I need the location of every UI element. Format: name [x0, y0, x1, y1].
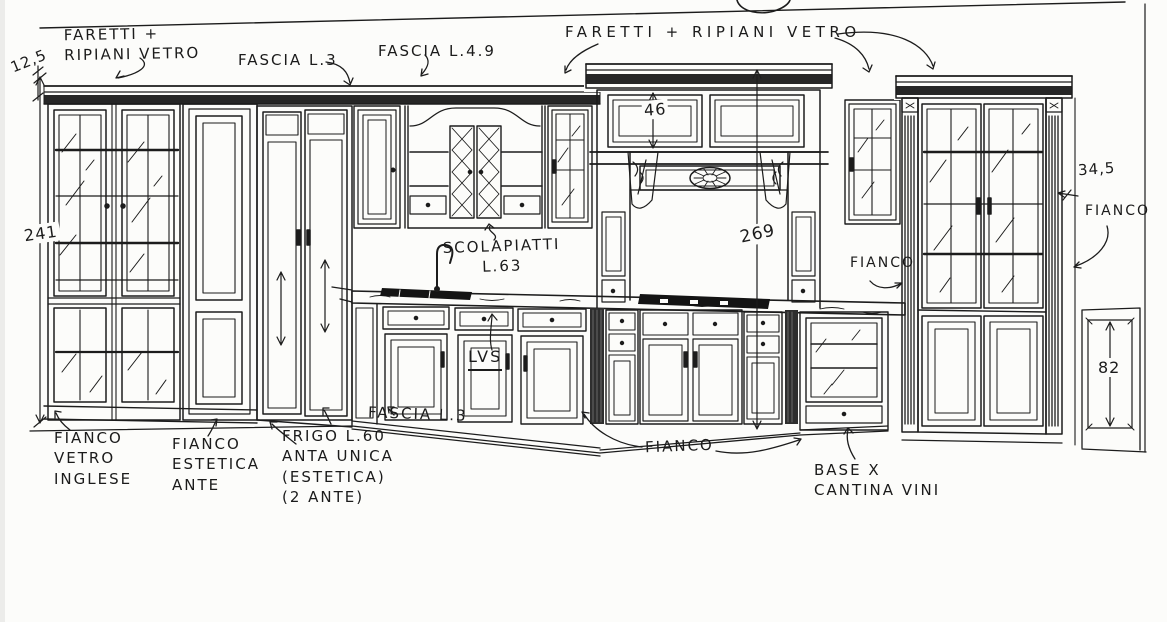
wall-cabinets-sink-run — [354, 106, 592, 228]
label-fascia-l3-bottom: FASCIA L.3 — [368, 402, 468, 426]
plain-wall-cabinet — [354, 106, 400, 228]
label-fascia-l3-top: FASCIA L.3 — [238, 50, 338, 70]
tall-door-cabinet — [183, 104, 257, 420]
right-end-panel — [1075, 98, 1140, 450]
glass-wall-cabinet — [548, 106, 592, 228]
label-lvs: LVS — [468, 346, 502, 371]
left-glass-cabinet — [44, 104, 257, 423]
scolapiatti-plate-rack — [405, 106, 545, 228]
label-fianco-vetro-inglese: FIANCO VETRO INGLESE — [54, 428, 132, 489]
dimension-lines — [33, 66, 1114, 429]
label-fianco-right-top: FIANCO — [1085, 202, 1150, 221]
corner-fridge-cabinet — [257, 106, 352, 427]
hood-unit — [584, 60, 834, 308]
right-wall-cabinet — [845, 100, 900, 224]
wine-cellar-base — [800, 312, 888, 430]
label-frigo: FRIGO L.60 ANTA UNICA (ESTETICA) (2 ANTE… — [282, 426, 394, 507]
kitchen-elevation-sheet: FARETTI + RIPIANI VETRO FASCIA L.3 FASCI… — [0, 0, 1167, 622]
cornice-fascia-band — [44, 86, 600, 104]
label-base-cantina: BASE X CANTINA VINI — [814, 460, 940, 501]
dim-34-5: 34,5 — [1077, 159, 1116, 180]
label-fianco-mid: FIANCO — [850, 254, 915, 273]
label-fianco-estetica-ante: FIANCO ESTETICA ANTE — [172, 434, 260, 495]
dim-46: 46 — [641, 99, 669, 120]
label-faretti-left: FARETTI + RIPIANI VETRO — [64, 23, 201, 66]
base-cabinets-hood-run — [590, 308, 800, 450]
label-fascia-l49: FASCIA L.4.9 — [378, 41, 496, 61]
label-fianco-bottom: FIANCO — [645, 435, 714, 458]
fluted-pilaster-right — [1046, 98, 1062, 434]
label-faretti-right: FARETTI + RIPIANI VETRO — [565, 22, 861, 42]
kitchen-elevation-drawing — [0, 0, 1167, 622]
right-tall-glass-cabinet — [894, 74, 1074, 434]
label-scolapiatti: SCOLAPIATTI L.63 — [442, 234, 561, 279]
dim-82: 82 — [1096, 358, 1122, 377]
